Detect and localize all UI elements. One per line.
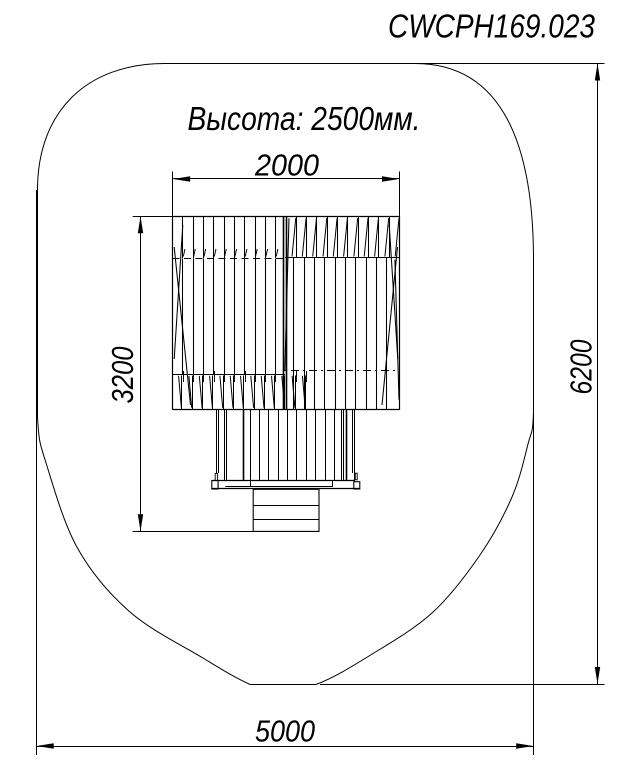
svg-text:6200: 6200: [564, 340, 599, 395]
svg-text:CWCPH169.023: CWCPH169.023: [388, 9, 595, 46]
svg-text:Высота: 2500мм.: Высота: 2500мм.: [188, 100, 421, 137]
svg-text:5000: 5000: [255, 714, 315, 749]
svg-text:2000: 2000: [254, 148, 319, 183]
svg-text:3200: 3200: [105, 347, 140, 404]
